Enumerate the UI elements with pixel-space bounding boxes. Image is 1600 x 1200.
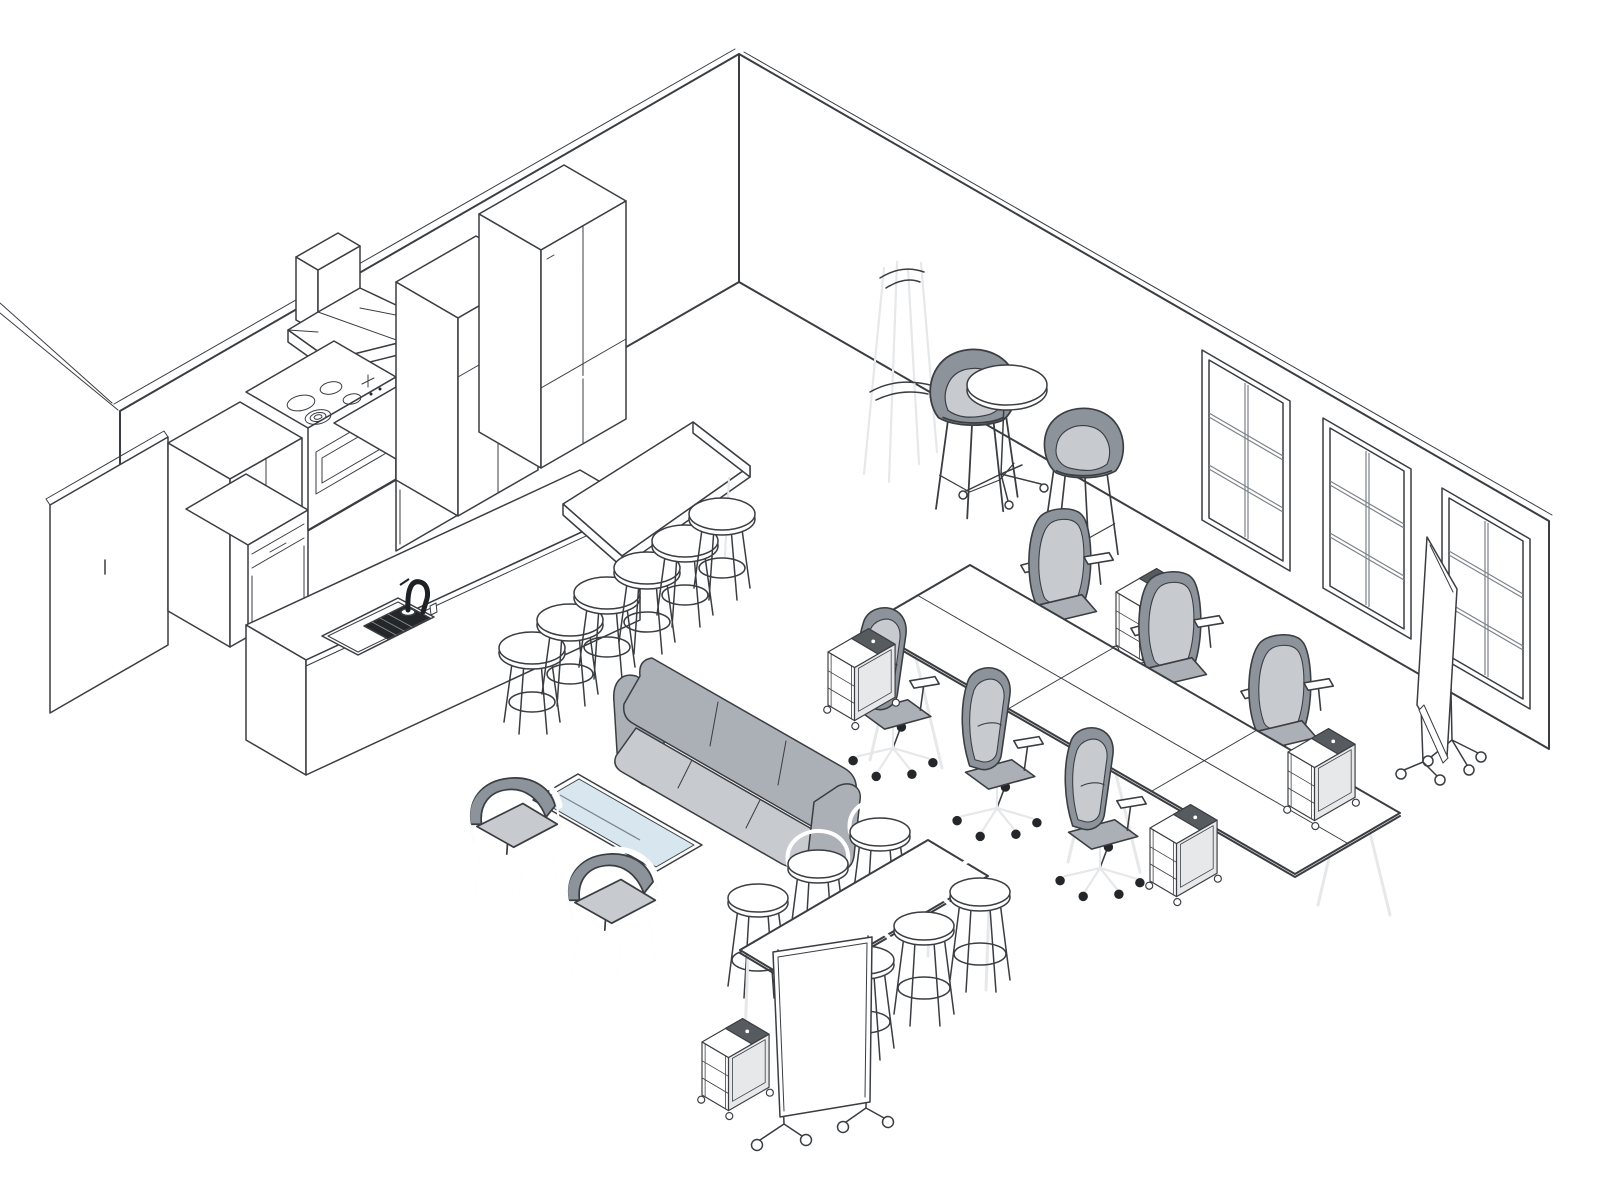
french-door-refrigerator <box>479 165 626 468</box>
office-floorplan-illustration <box>0 0 1600 1200</box>
tall-wardrobe-cabinet <box>46 431 168 713</box>
storage-cart <box>698 1019 774 1120</box>
storage-cart <box>1146 805 1222 906</box>
island-stool <box>499 632 565 734</box>
lounge-chair <box>467 773 560 914</box>
island-stool <box>689 498 755 600</box>
isometric-scene <box>0 0 1600 1200</box>
wall-return-edge <box>0 303 118 410</box>
lounge-chair <box>565 849 658 990</box>
